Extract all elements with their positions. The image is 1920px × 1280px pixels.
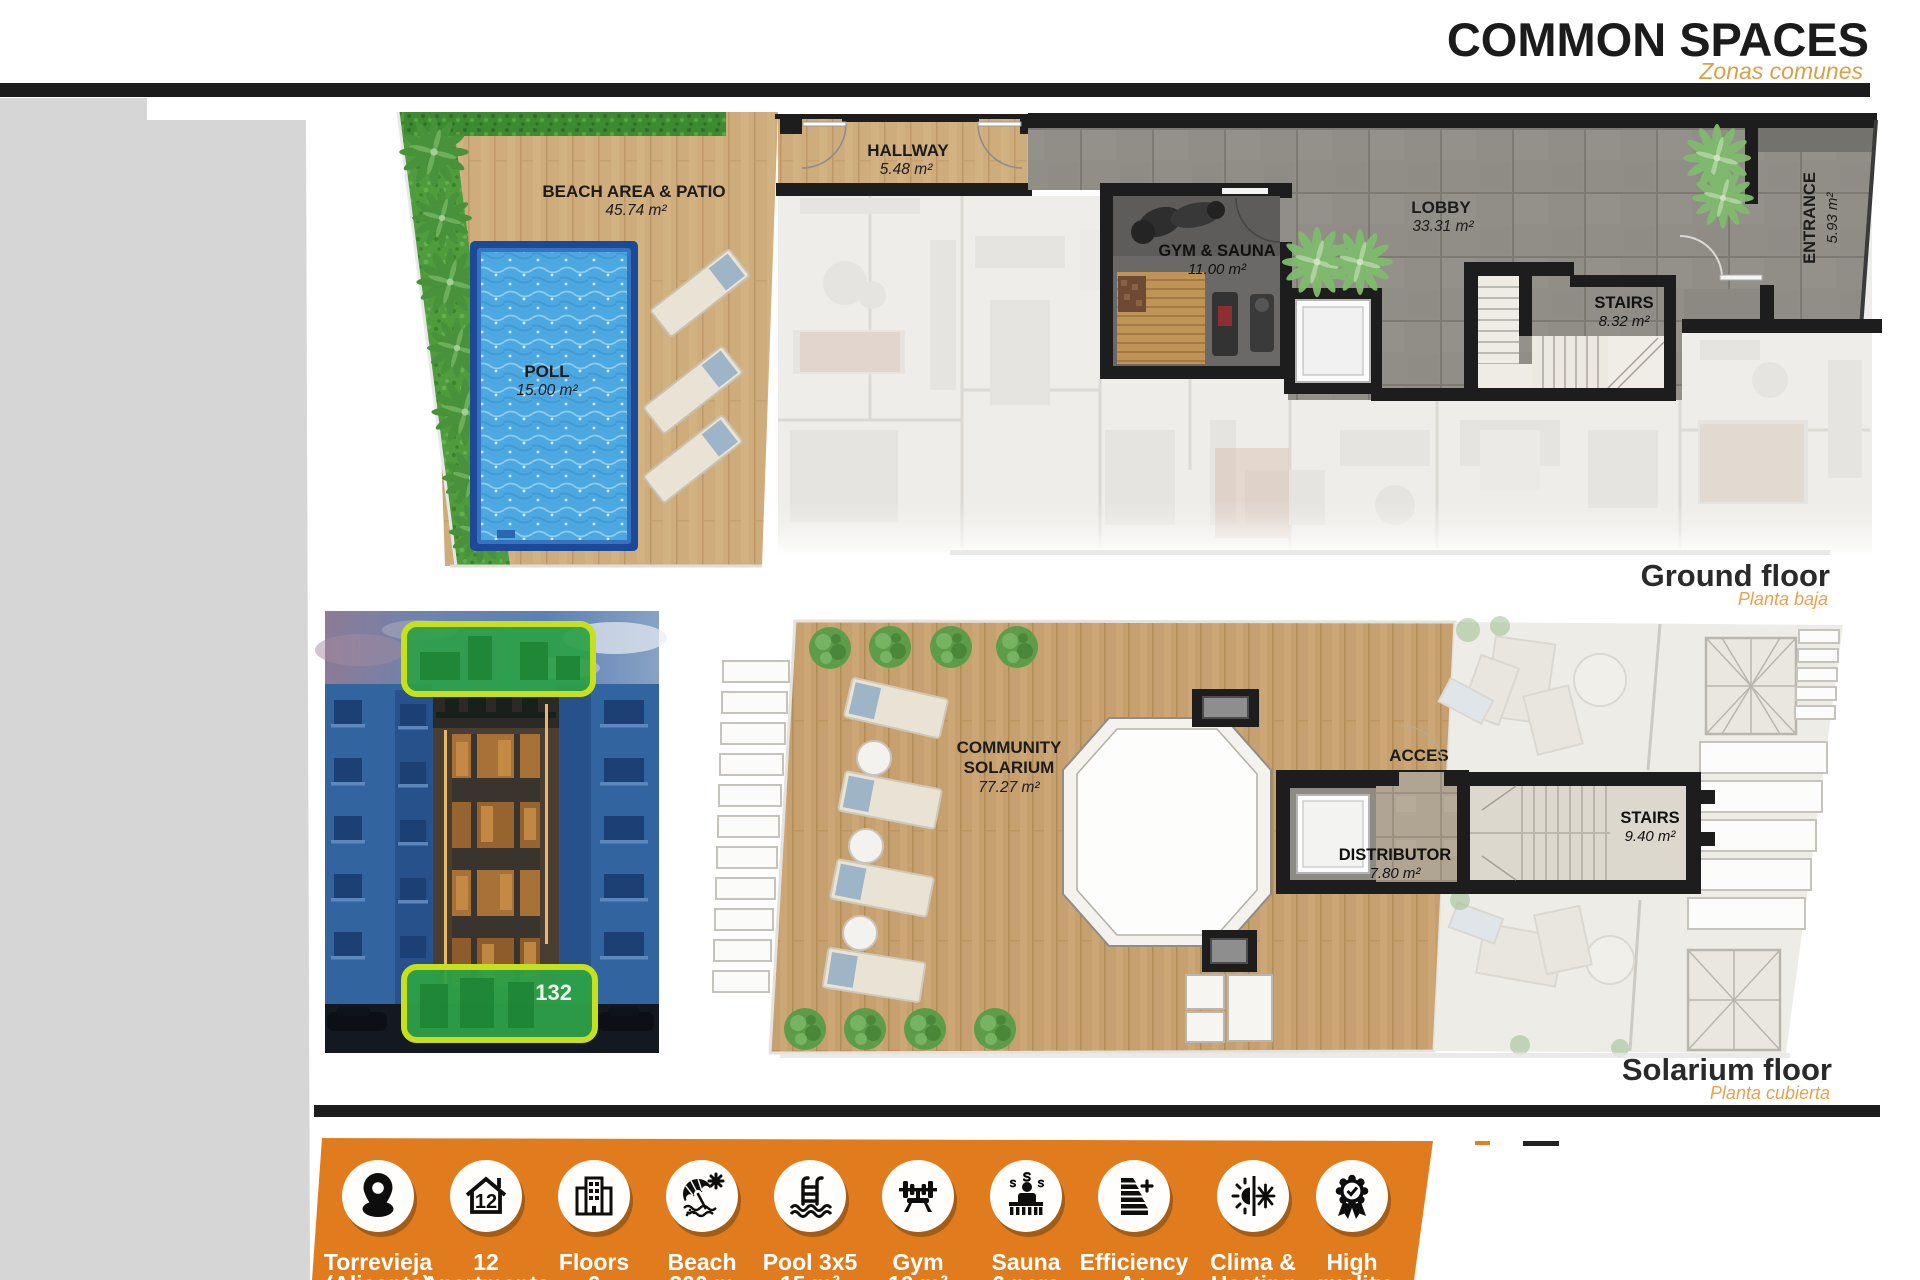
svg-text:77.27 m²: 77.27 m²: [978, 779, 1040, 796]
svg-text:300 m: 300 m: [669, 1271, 734, 1280]
svg-text:A+: A+: [1119, 1271, 1149, 1280]
svg-text:5.93 m²: 5.93 m²: [1824, 192, 1841, 244]
svg-text:SOLARIUM: SOLARIUM: [964, 758, 1055, 777]
svg-text:6: 6: [588, 1271, 601, 1280]
svg-text:7.80 m²: 7.80 m²: [1370, 865, 1422, 882]
svg-text:6 pers: 6 pers: [992, 1271, 1060, 1280]
svg-text:DISTRIBUTOR: DISTRIBUTOR: [1339, 846, 1452, 864]
svg-text:ENTRANCE: ENTRANCE: [1801, 172, 1819, 264]
svg-text:Planta baja: Planta baja: [1738, 589, 1828, 609]
svg-text:10 m²: 10 m²: [888, 1271, 948, 1280]
svg-text:12: 12: [475, 1191, 497, 1213]
svg-text:ACCES: ACCES: [1389, 746, 1449, 765]
svg-text:Zonas comunes: Zonas comunes: [1698, 58, 1863, 84]
svg-text:11.00 m²: 11.00 m²: [1188, 261, 1247, 278]
svg-text:Apartments: Apartments: [422, 1271, 550, 1280]
svg-text:STAIRS: STAIRS: [1594, 294, 1653, 312]
svg-text:9.40 m²: 9.40 m²: [1625, 828, 1677, 845]
svg-text:GYM & SAUNA: GYM & SAUNA: [1158, 242, 1275, 260]
svg-text:quality: quality: [1315, 1271, 1389, 1280]
svg-text:45.74 m²: 45.74 m²: [605, 202, 667, 219]
svg-text:15 m²: 15 m²: [780, 1271, 840, 1280]
svg-text:POLL: POLL: [524, 362, 569, 381]
svg-text:33.31 m²: 33.31 m²: [1412, 218, 1474, 235]
svg-text:COMMUNITY: COMMUNITY: [957, 738, 1062, 757]
svg-text:5.48 m²: 5.48 m²: [880, 161, 933, 178]
svg-text:(Alicante): (Alicante): [326, 1271, 431, 1280]
svg-text:BEACH AREA & PATIO: BEACH AREA & PATIO: [542, 182, 725, 201]
svg-text:Planta cubierta: Planta cubierta: [1710, 1083, 1830, 1103]
svg-text:Ground floor: Ground floor: [1641, 558, 1830, 593]
svg-text:Solarium floor: Solarium floor: [1622, 1052, 1832, 1087]
svg-text:STAIRS: STAIRS: [1620, 809, 1679, 827]
svg-text:HALLWAY: HALLWAY: [867, 141, 949, 160]
svg-text:8.32 m²: 8.32 m²: [1599, 313, 1651, 330]
svg-text:15.00 m²: 15.00 m²: [516, 382, 578, 399]
svg-text:132: 132: [535, 980, 572, 1005]
svg-text:LOBBY: LOBBY: [1411, 198, 1471, 217]
svg-text:Heating: Heating: [1211, 1271, 1295, 1280]
